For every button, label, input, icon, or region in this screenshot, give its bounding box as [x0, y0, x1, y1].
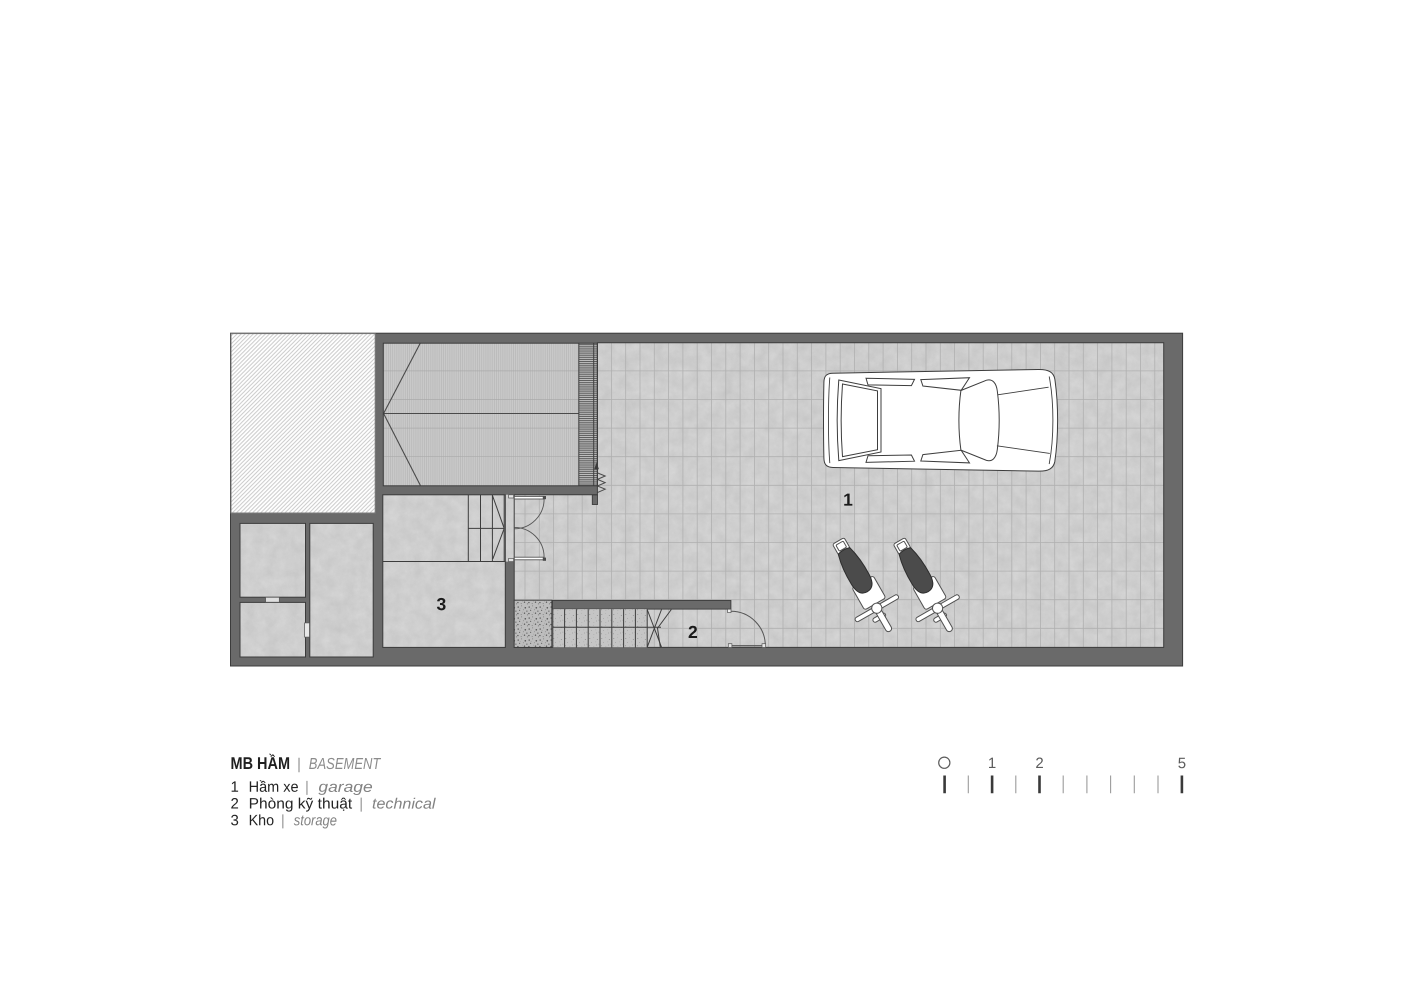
svg-text:technical: technical	[372, 796, 436, 813]
svg-text:|: |	[359, 796, 363, 813]
svg-text:3: 3	[437, 594, 447, 614]
svg-text:5: 5	[1178, 755, 1186, 772]
svg-text:2: 2	[1035, 755, 1043, 772]
svg-text:Hầm xe: Hầm xe	[249, 779, 299, 796]
svg-text:2: 2	[230, 795, 238, 812]
svg-text:3: 3	[230, 812, 238, 829]
svg-text:1: 1	[988, 755, 996, 772]
svg-text:Phòng kỹ thuật: Phòng kỹ thuật	[249, 795, 353, 812]
svg-text:|: |	[281, 812, 285, 829]
svg-text:2: 2	[688, 622, 698, 642]
svg-text:garage: garage	[318, 779, 372, 796]
svg-text:Kho: Kho	[249, 812, 275, 829]
svg-text:|: |	[297, 756, 301, 773]
svg-text:storage: storage	[294, 812, 337, 829]
svg-text:MB HẦM: MB HẦM	[231, 753, 291, 773]
svg-text:1: 1	[230, 779, 238, 796]
svg-text:1: 1	[843, 490, 853, 510]
svg-text:BASEMENT: BASEMENT	[309, 756, 382, 773]
svg-text:|: |	[305, 779, 309, 796]
